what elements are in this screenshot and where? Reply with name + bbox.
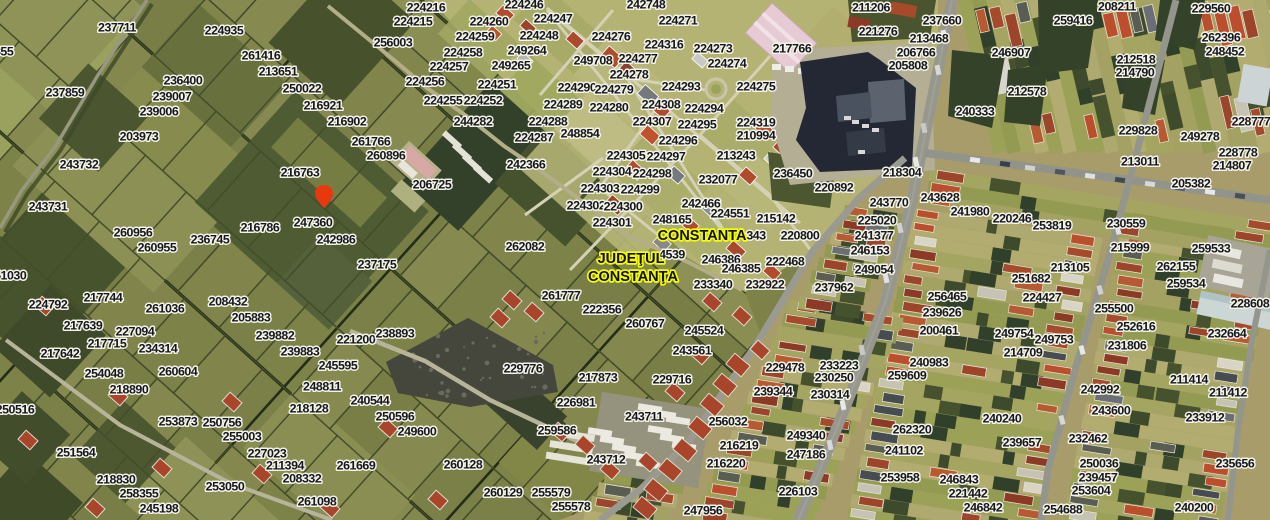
svg-text:224246: 224246 bbox=[505, 0, 544, 12]
svg-text:238893: 238893 bbox=[376, 327, 415, 341]
svg-text:217639: 217639 bbox=[64, 319, 103, 333]
svg-text:218304: 218304 bbox=[883, 166, 922, 180]
svg-text:212518: 212518 bbox=[1117, 53, 1156, 67]
svg-text:224305: 224305 bbox=[607, 149, 646, 163]
svg-text:243732: 243732 bbox=[60, 158, 99, 172]
svg-text:250596: 250596 bbox=[376, 410, 415, 424]
svg-text:256032: 256032 bbox=[709, 415, 748, 429]
svg-text:242992: 242992 bbox=[1081, 383, 1120, 397]
svg-text:224247: 224247 bbox=[534, 12, 573, 26]
svg-text:216902: 216902 bbox=[328, 115, 367, 129]
svg-text:224258: 224258 bbox=[444, 46, 483, 60]
svg-text:224307: 224307 bbox=[633, 115, 672, 129]
svg-text:249753: 249753 bbox=[1035, 333, 1074, 347]
svg-text:224304: 224304 bbox=[593, 165, 632, 179]
svg-text:208432: 208432 bbox=[209, 295, 248, 309]
svg-text:261416: 261416 bbox=[242, 49, 281, 63]
svg-text:229776: 229776 bbox=[504, 362, 543, 376]
svg-text:213011: 213011 bbox=[1121, 155, 1160, 169]
svg-text:217873: 217873 bbox=[579, 371, 618, 385]
svg-text:224300: 224300 bbox=[604, 200, 643, 214]
svg-text:248854: 248854 bbox=[561, 127, 600, 141]
svg-text:239344: 239344 bbox=[754, 385, 793, 399]
svg-text:249754: 249754 bbox=[995, 327, 1034, 341]
svg-text:216220: 216220 bbox=[707, 457, 746, 471]
svg-text:224251: 224251 bbox=[478, 78, 517, 92]
svg-text:212578: 212578 bbox=[1008, 85, 1047, 99]
svg-text:249340: 249340 bbox=[787, 429, 826, 443]
svg-text:224280: 224280 bbox=[590, 101, 629, 115]
svg-text:239882: 239882 bbox=[256, 329, 295, 343]
svg-text:248452: 248452 bbox=[1206, 45, 1245, 59]
svg-text:224255: 224255 bbox=[424, 94, 463, 108]
svg-text:262320: 262320 bbox=[893, 423, 932, 437]
svg-text:224248: 224248 bbox=[520, 29, 559, 43]
svg-text:203973: 203973 bbox=[120, 130, 159, 144]
svg-text:220246: 220246 bbox=[993, 212, 1032, 226]
svg-text:225020: 225020 bbox=[858, 214, 897, 228]
svg-text:224293: 224293 bbox=[662, 80, 701, 94]
svg-text:CONSTANTA: CONSTANTA bbox=[658, 228, 747, 244]
svg-text:208332: 208332 bbox=[283, 472, 322, 486]
svg-text:230314: 230314 bbox=[811, 388, 850, 402]
svg-text:239007: 239007 bbox=[153, 90, 192, 104]
svg-text:229828: 229828 bbox=[1119, 124, 1158, 138]
svg-text:343: 343 bbox=[746, 229, 766, 243]
svg-text:224319: 224319 bbox=[737, 116, 776, 130]
svg-text:249708: 249708 bbox=[574, 54, 613, 68]
svg-text:224279: 224279 bbox=[595, 83, 634, 97]
svg-text:253050: 253050 bbox=[206, 480, 245, 494]
svg-text:214790: 214790 bbox=[1116, 66, 1155, 80]
svg-text:256465: 256465 bbox=[928, 290, 967, 304]
svg-text:240240: 240240 bbox=[983, 412, 1022, 426]
svg-text:234314: 234314 bbox=[139, 342, 178, 356]
svg-text:221442: 221442 bbox=[949, 487, 988, 501]
svg-text:250036: 250036 bbox=[1080, 457, 1119, 471]
svg-text:243561: 243561 bbox=[673, 344, 712, 358]
svg-text:JUDEŢUL: JUDEŢUL bbox=[598, 251, 665, 267]
svg-text:232922: 232922 bbox=[746, 278, 785, 292]
svg-text:240983: 240983 bbox=[910, 356, 949, 370]
svg-text:260128: 260128 bbox=[444, 458, 483, 472]
svg-text:259586: 259586 bbox=[538, 424, 577, 438]
svg-text:261777: 261777 bbox=[542, 289, 581, 303]
svg-text:224792: 224792 bbox=[29, 298, 68, 312]
svg-text:224301: 224301 bbox=[593, 216, 632, 230]
svg-text:222356: 222356 bbox=[583, 303, 622, 317]
svg-text:205808: 205808 bbox=[889, 59, 928, 73]
svg-text:248165: 248165 bbox=[653, 213, 692, 227]
svg-text:237175: 237175 bbox=[358, 258, 397, 272]
svg-text:259534: 259534 bbox=[1167, 277, 1206, 291]
svg-text:224299: 224299 bbox=[621, 183, 660, 197]
svg-text:242366: 242366 bbox=[507, 158, 546, 172]
svg-text:247956: 247956 bbox=[684, 504, 723, 518]
svg-text:248811: 248811 bbox=[303, 380, 342, 394]
svg-text:205382: 205382 bbox=[1172, 177, 1211, 191]
svg-text:206725: 206725 bbox=[413, 178, 452, 192]
svg-text:236450: 236450 bbox=[774, 167, 813, 181]
svg-text:224278: 224278 bbox=[610, 68, 649, 82]
svg-text:243712: 243712 bbox=[587, 453, 626, 467]
svg-text:259609: 259609 bbox=[888, 369, 927, 383]
svg-text:245524: 245524 bbox=[685, 324, 724, 338]
svg-text:245595: 245595 bbox=[319, 359, 358, 373]
svg-text:216921: 216921 bbox=[304, 99, 343, 113]
svg-text:247186: 247186 bbox=[787, 448, 826, 462]
svg-text:213105: 213105 bbox=[1051, 261, 1090, 275]
svg-text:217766: 217766 bbox=[773, 42, 812, 56]
svg-text:216786: 216786 bbox=[241, 221, 280, 235]
svg-text:221276: 221276 bbox=[859, 25, 898, 39]
svg-text:243711: 243711 bbox=[625, 410, 664, 424]
svg-text:246907: 246907 bbox=[992, 46, 1031, 60]
svg-text:210994: 210994 bbox=[737, 129, 776, 143]
svg-text:240544: 240544 bbox=[351, 394, 390, 408]
svg-text:237660: 237660 bbox=[923, 14, 962, 28]
svg-text:205883: 205883 bbox=[232, 311, 271, 325]
svg-text:224257: 224257 bbox=[430, 60, 469, 74]
svg-text:224290: 224290 bbox=[558, 81, 597, 95]
svg-text:249264: 249264 bbox=[508, 44, 547, 58]
svg-text:224274: 224274 bbox=[708, 57, 747, 71]
svg-text:224427: 224427 bbox=[1023, 291, 1062, 305]
svg-text:224273: 224273 bbox=[694, 42, 733, 56]
svg-text:250022: 250022 bbox=[283, 82, 322, 96]
svg-text:214709: 214709 bbox=[1004, 346, 1043, 360]
svg-text:224303: 224303 bbox=[581, 182, 620, 196]
svg-text:249054: 249054 bbox=[855, 263, 894, 277]
svg-text:242986: 242986 bbox=[317, 233, 356, 247]
svg-text:218890: 218890 bbox=[110, 383, 149, 397]
svg-text:226981: 226981 bbox=[557, 396, 596, 410]
svg-text:224277: 224277 bbox=[619, 52, 658, 66]
svg-text:253604: 253604 bbox=[1072, 484, 1111, 498]
svg-text:216219: 216219 bbox=[720, 439, 759, 453]
svg-text:224271: 224271 bbox=[659, 14, 698, 28]
svg-text:224296: 224296 bbox=[659, 134, 698, 148]
svg-text:229716: 229716 bbox=[653, 373, 692, 387]
svg-text:229478: 229478 bbox=[766, 361, 805, 375]
svg-text:224215: 224215 bbox=[394, 15, 433, 29]
svg-text:224252: 224252 bbox=[464, 94, 503, 108]
svg-text:243770: 243770 bbox=[870, 196, 909, 210]
svg-text:224259: 224259 bbox=[456, 30, 495, 44]
svg-text:CONSTANŢA: CONSTANŢA bbox=[588, 269, 678, 285]
svg-text:214807: 214807 bbox=[1213, 159, 1252, 173]
svg-text:224289: 224289 bbox=[544, 98, 583, 112]
svg-text:253819: 253819 bbox=[1033, 219, 1072, 233]
svg-text:243731: 243731 bbox=[29, 200, 68, 214]
svg-text:243600: 243600 bbox=[1092, 404, 1131, 418]
svg-text:213468: 213468 bbox=[910, 32, 949, 46]
svg-text:224551: 224551 bbox=[711, 207, 750, 221]
svg-text:251030: 251030 bbox=[0, 269, 27, 283]
svg-text:260767: 260767 bbox=[626, 317, 665, 331]
svg-text:254688: 254688 bbox=[1044, 503, 1083, 517]
svg-text:239457: 239457 bbox=[1079, 471, 1118, 485]
svg-text:224297: 224297 bbox=[647, 150, 686, 164]
svg-text:224294: 224294 bbox=[685, 102, 724, 116]
svg-text:253873: 253873 bbox=[159, 415, 198, 429]
svg-text:224287: 224287 bbox=[515, 131, 554, 145]
svg-text:224275: 224275 bbox=[737, 80, 776, 94]
svg-text:242748: 242748 bbox=[627, 0, 666, 12]
svg-text:262155: 262155 bbox=[1157, 260, 1196, 274]
svg-text:224302: 224302 bbox=[567, 199, 606, 213]
svg-text:249600: 249600 bbox=[398, 425, 437, 439]
svg-text:250756: 250756 bbox=[203, 416, 242, 430]
svg-text:254048: 254048 bbox=[85, 367, 124, 381]
svg-text:213243: 213243 bbox=[717, 149, 756, 163]
svg-text:218128: 218128 bbox=[290, 402, 329, 416]
svg-text:226103: 226103 bbox=[779, 485, 818, 499]
svg-text:231806: 231806 bbox=[1108, 339, 1147, 353]
svg-text:216763: 216763 bbox=[281, 166, 320, 180]
svg-text:237962: 237962 bbox=[815, 281, 854, 295]
svg-text:256003: 256003 bbox=[374, 36, 413, 50]
svg-text:224935: 224935 bbox=[205, 24, 244, 38]
svg-text:241102: 241102 bbox=[885, 444, 924, 458]
svg-text:237859: 237859 bbox=[46, 86, 85, 100]
svg-text:261766: 261766 bbox=[352, 135, 391, 149]
svg-text:249278: 249278 bbox=[1181, 130, 1220, 144]
svg-text:200461: 200461 bbox=[920, 324, 959, 338]
svg-text:240333: 240333 bbox=[956, 105, 995, 119]
svg-text:251682: 251682 bbox=[1012, 272, 1051, 286]
svg-text:260956: 260956 bbox=[114, 226, 153, 240]
svg-text:211206: 211206 bbox=[852, 1, 891, 15]
svg-text:233912: 233912 bbox=[1186, 411, 1225, 425]
svg-text:246153: 246153 bbox=[851, 244, 890, 258]
svg-text:224316: 224316 bbox=[645, 38, 684, 52]
svg-text:230559: 230559 bbox=[1107, 217, 1146, 231]
svg-text:255500: 255500 bbox=[1095, 302, 1134, 316]
svg-text:255003: 255003 bbox=[223, 430, 262, 444]
svg-text:249265: 249265 bbox=[492, 59, 531, 73]
svg-text:241980: 241980 bbox=[951, 205, 990, 219]
svg-text:230250: 230250 bbox=[815, 371, 854, 385]
svg-text:239006: 239006 bbox=[140, 105, 179, 119]
svg-text:252616: 252616 bbox=[1117, 320, 1156, 334]
svg-text:211412: 211412 bbox=[1209, 386, 1248, 400]
svg-text:220892: 220892 bbox=[815, 181, 854, 195]
svg-text:215142: 215142 bbox=[757, 212, 796, 226]
svg-text:217642: 217642 bbox=[41, 347, 80, 361]
svg-text:244282: 244282 bbox=[454, 115, 493, 129]
svg-text:222468: 222468 bbox=[766, 255, 805, 269]
svg-text:224256: 224256 bbox=[406, 75, 445, 89]
svg-text:228778: 228778 bbox=[1219, 146, 1258, 160]
svg-text:228608: 228608 bbox=[1231, 297, 1270, 311]
svg-text:228777: 228777 bbox=[1232, 115, 1270, 129]
svg-text:229560: 229560 bbox=[1192, 2, 1231, 16]
svg-text:238855: 238855 bbox=[0, 45, 14, 59]
svg-text:217715: 217715 bbox=[88, 337, 127, 351]
svg-text:237711: 237711 bbox=[98, 21, 137, 35]
svg-text:260604: 260604 bbox=[159, 365, 198, 379]
svg-text:239626: 239626 bbox=[923, 306, 962, 320]
svg-text:260955: 260955 bbox=[138, 241, 177, 255]
svg-text:259416: 259416 bbox=[1054, 14, 1093, 28]
svg-text:233340: 233340 bbox=[694, 278, 733, 292]
svg-text:211394: 211394 bbox=[266, 459, 305, 473]
svg-text:232462: 232462 bbox=[1069, 432, 1108, 446]
svg-text:260896: 260896 bbox=[367, 149, 406, 163]
svg-text:224298: 224298 bbox=[633, 167, 672, 181]
svg-text:255578: 255578 bbox=[552, 500, 591, 514]
svg-text:261669: 261669 bbox=[337, 459, 376, 473]
svg-text:224308: 224308 bbox=[642, 98, 681, 112]
svg-text:259533: 259533 bbox=[1192, 242, 1231, 256]
svg-text:251564: 251564 bbox=[57, 446, 96, 460]
svg-text:250516: 250516 bbox=[0, 403, 35, 417]
svg-text:247360: 247360 bbox=[294, 216, 333, 230]
svg-text:240200: 240200 bbox=[1175, 501, 1214, 515]
svg-text:236400: 236400 bbox=[164, 74, 203, 88]
svg-text:241377: 241377 bbox=[855, 229, 894, 243]
svg-text:246385: 246385 bbox=[722, 262, 761, 276]
svg-text:261098: 261098 bbox=[298, 495, 337, 509]
svg-text:215999: 215999 bbox=[1111, 241, 1150, 255]
svg-text:211414: 211414 bbox=[1170, 373, 1209, 387]
svg-text:258355: 258355 bbox=[120, 487, 159, 501]
svg-text:255579: 255579 bbox=[532, 486, 571, 500]
svg-text:243628: 243628 bbox=[921, 191, 960, 205]
svg-text:262082: 262082 bbox=[506, 240, 545, 254]
svg-text:246843: 246843 bbox=[940, 473, 979, 487]
svg-text:261036: 261036 bbox=[146, 302, 185, 316]
svg-text:221200: 221200 bbox=[337, 333, 376, 347]
svg-text:245198: 245198 bbox=[140, 502, 179, 516]
svg-text:224276: 224276 bbox=[592, 30, 631, 44]
svg-text:232664: 232664 bbox=[1208, 327, 1247, 341]
svg-text:218830: 218830 bbox=[97, 473, 136, 487]
svg-text:236745: 236745 bbox=[191, 233, 230, 247]
svg-text:232077: 232077 bbox=[699, 173, 738, 187]
svg-text:213651: 213651 bbox=[259, 65, 298, 79]
svg-text:206766: 206766 bbox=[897, 46, 936, 60]
svg-text:246842: 246842 bbox=[964, 501, 1003, 515]
svg-text:235656: 235656 bbox=[1216, 457, 1255, 471]
svg-text:262396: 262396 bbox=[1202, 31, 1241, 45]
svg-text:239883: 239883 bbox=[281, 345, 320, 359]
svg-text:224260: 224260 bbox=[470, 15, 509, 29]
svg-text:220800: 220800 bbox=[781, 229, 820, 243]
svg-text:224295: 224295 bbox=[678, 118, 717, 132]
svg-text:260129: 260129 bbox=[484, 486, 523, 500]
svg-text:239657: 239657 bbox=[1003, 436, 1042, 450]
svg-text:208211: 208211 bbox=[1098, 0, 1137, 14]
svg-text:217744: 217744 bbox=[84, 291, 123, 305]
svg-text:224216: 224216 bbox=[407, 1, 446, 15]
svg-text:253958: 253958 bbox=[881, 471, 920, 485]
